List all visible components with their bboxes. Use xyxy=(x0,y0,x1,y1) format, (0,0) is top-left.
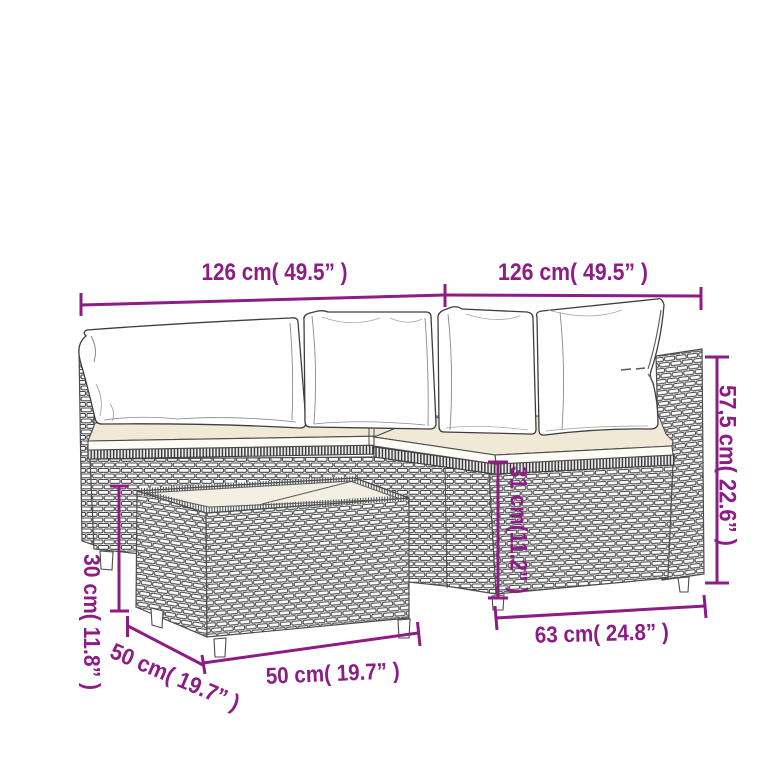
svg-text:126 cm( 49.5” ): 126 cm( 49.5” ) xyxy=(202,259,348,286)
svg-text:57,5 cm( 22.6” ): 57,5 cm( 22.6” ) xyxy=(714,385,741,546)
svg-text:30 cm( 11.8” ): 30 cm( 11.8” ) xyxy=(79,554,105,690)
svg-text:63 cm( 24.8” ): 63 cm( 24.8” ) xyxy=(534,618,669,647)
svg-text:126 cm( 49.5” ): 126 cm( 49.5” ) xyxy=(498,259,648,286)
svg-text:31 cm(11.2” ): 31 cm(11.2” ) xyxy=(505,466,532,594)
